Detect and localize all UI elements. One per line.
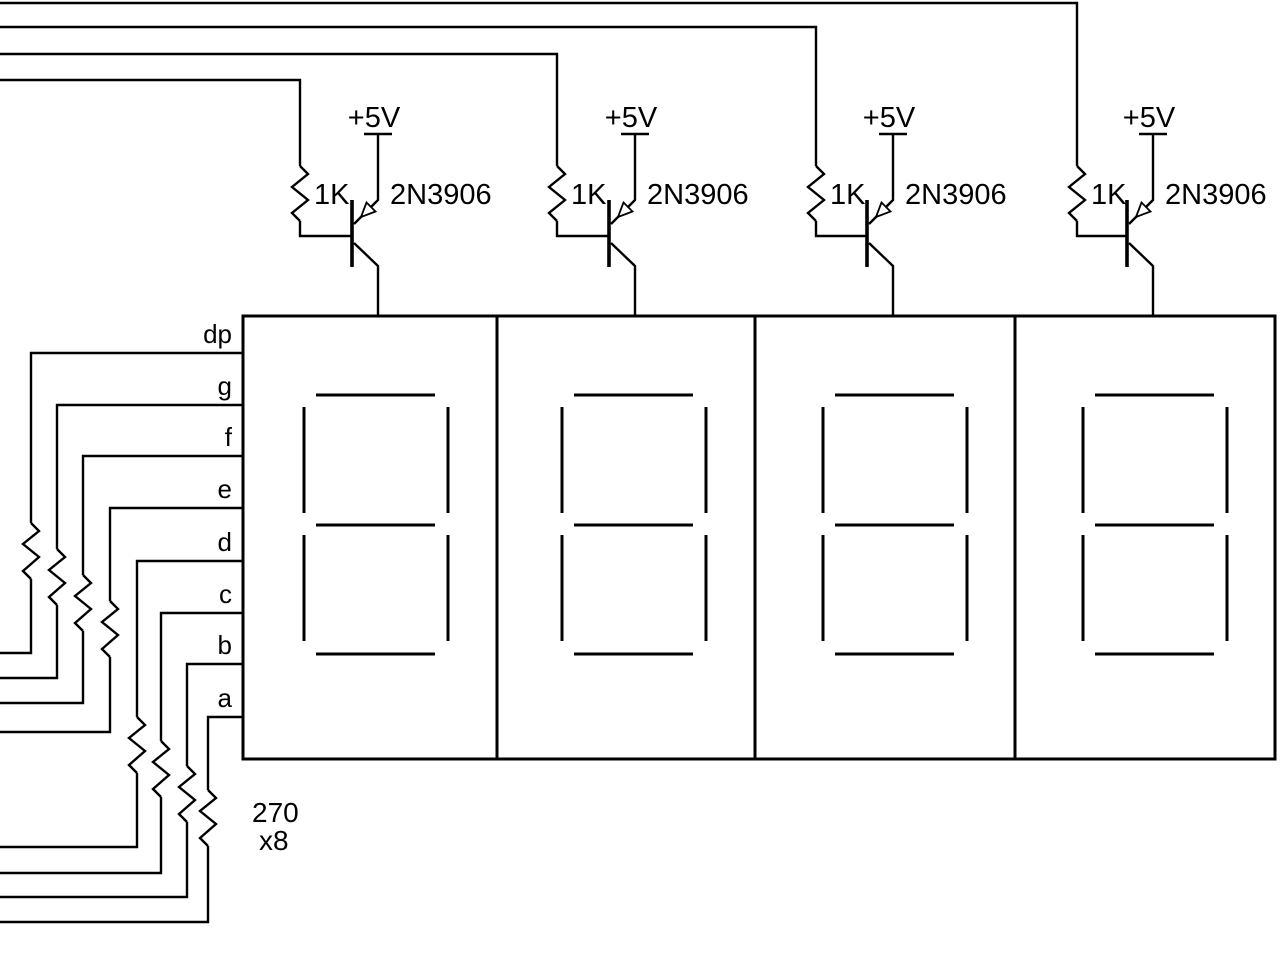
- base-wire: [300, 221, 351, 236]
- pnp-transistor: [1127, 134, 1153, 316]
- segment-return-wire: [0, 579, 31, 653]
- segment-row-f: f: [0, 422, 243, 703]
- segment-row-dp: dp: [0, 319, 243, 653]
- segment-return-wire: [0, 605, 57, 678]
- digit-select-wire: [0, 54, 557, 166]
- base-resistor-label: 1K: [1091, 179, 1127, 211]
- segment-wire: [57, 405, 243, 549]
- segment-label: c: [219, 579, 232, 609]
- supply-label: +5V: [605, 102, 658, 134]
- supply-label: +5V: [348, 102, 401, 134]
- display-box-4: [1015, 316, 1275, 759]
- base-wire: [557, 221, 608, 236]
- segment-label: f: [225, 422, 233, 452]
- supply-label: +5V: [1123, 102, 1176, 134]
- digit-select-wire: [0, 80, 300, 166]
- base-resistor-zigzag: [549, 166, 565, 221]
- base-wire: [816, 221, 866, 236]
- digit-select-wire: [0, 27, 816, 166]
- display-box-3: [755, 316, 1015, 759]
- segment-wire: [208, 717, 243, 790]
- transistor-label: 2N3906: [390, 179, 492, 211]
- segment-resistor-zigzag: [129, 717, 145, 773]
- collector-wire: [869, 243, 893, 316]
- transistor-label: 2N3906: [1165, 179, 1267, 211]
- segment-label: a: [218, 683, 233, 713]
- base-wire: [1077, 221, 1126, 236]
- segment-resistor-zigzag: [75, 575, 91, 631]
- segment-resistor-zigzag: [23, 523, 39, 579]
- segment-label: d: [218, 527, 232, 557]
- segment-resistor-count: x8: [259, 825, 289, 856]
- segment-return-wire: [0, 773, 137, 847]
- schematic-page: +5V 1K 2N3906 +5V 1K 2N3906 +5V 1K: [0, 0, 1280, 963]
- pnp-transistor: [867, 134, 893, 316]
- segment-resistor-zigzag: [179, 766, 195, 822]
- segment-return-wire: [0, 846, 208, 922]
- segment-row-g: g: [0, 371, 243, 678]
- segment-row-d: d: [0, 527, 243, 847]
- segment-return-wire: [0, 822, 187, 897]
- segment-label: e: [218, 474, 232, 504]
- collector-wire: [354, 243, 378, 316]
- base-resistor-zigzag: [1069, 166, 1085, 221]
- base-resistor-zigzag: [292, 166, 308, 221]
- segment-resistor-zigzag: [153, 741, 169, 797]
- transistor-label: 2N3906: [905, 179, 1007, 211]
- display-box-1: [243, 316, 497, 759]
- segment-resistor-value: 270: [252, 797, 299, 828]
- segment-label: dp: [203, 319, 232, 349]
- driver-stage-1: +5V 1K 2N3906: [0, 80, 492, 316]
- base-resistor-label: 1K: [314, 179, 350, 211]
- driver-stage-4: +5V 1K 2N3906: [0, 3, 1267, 316]
- seven-segment-displays: [243, 316, 1275, 759]
- segment-resistor-zigzag: [102, 601, 118, 657]
- base-resistor-zigzag: [808, 166, 824, 221]
- display-box-2: [497, 316, 755, 759]
- segment-wire: [187, 664, 243, 766]
- segment-resistor-callout: 270 x8: [252, 797, 299, 856]
- segment-row-c: c: [0, 579, 243, 873]
- base-resistor-label: 1K: [830, 179, 866, 211]
- segment-label: b: [218, 630, 232, 660]
- driver-stage-3: +5V 1K 2N3906: [0, 27, 1007, 316]
- segment-row-b: b: [0, 630, 243, 897]
- segment-row-a: a: [0, 683, 243, 922]
- segment-return-wire: [0, 631, 83, 703]
- driver-stage-2: +5V 1K 2N3906: [0, 54, 749, 316]
- segment-resistor-zigzag: [49, 549, 65, 605]
- segment-row-e: e: [0, 474, 243, 732]
- pnp-transistor: [609, 134, 635, 316]
- supply-label: +5V: [863, 102, 916, 134]
- collector-wire: [611, 243, 635, 316]
- segment-wire: [31, 353, 243, 523]
- transistor-label: 2N3906: [647, 179, 749, 211]
- collector-wire: [1129, 243, 1153, 316]
- segment-resistor-zigzag: [200, 790, 216, 846]
- segment-return-wire: [0, 657, 110, 732]
- base-resistor-label: 1K: [571, 179, 607, 211]
- segment-label: g: [218, 371, 232, 401]
- schematic-canvas: +5V 1K 2N3906 +5V 1K 2N3906 +5V 1K: [0, 0, 1280, 963]
- pnp-transistor: [352, 134, 378, 316]
